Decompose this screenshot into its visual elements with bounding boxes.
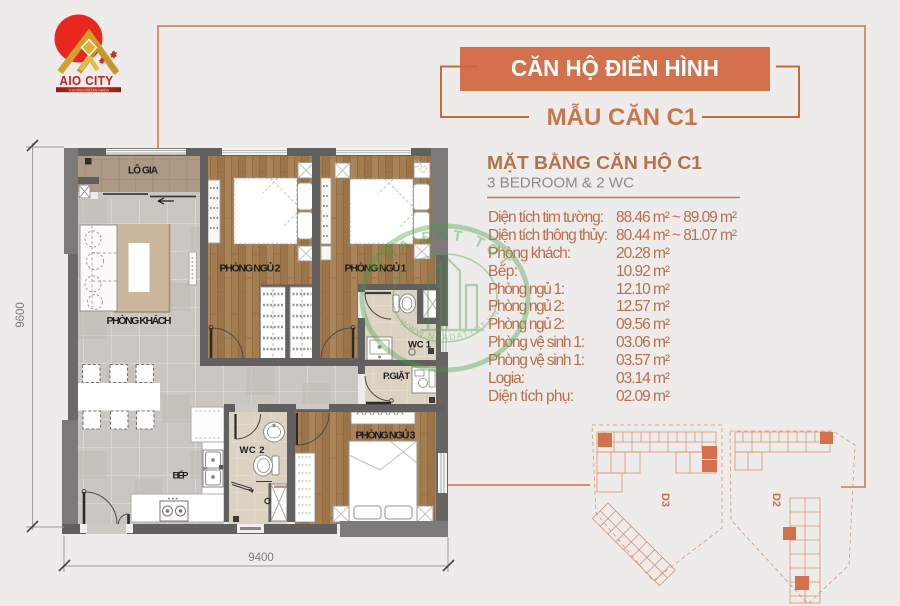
- svg-text:03.14 m²: 03.14 m²: [616, 370, 670, 387]
- svg-text:BẾP: BẾP: [173, 471, 190, 482]
- svg-text:09.56 m²: 09.56 m²: [616, 316, 670, 333]
- svg-text:P.GIẶT: P.GIẶT: [383, 371, 410, 382]
- svg-text:D3: D3: [659, 493, 671, 507]
- svg-text:PHÒNG NGỦ 2: PHÒNG NGỦ 2: [220, 262, 281, 275]
- svg-text:WC 2: WC 2: [240, 445, 265, 456]
- svg-text:MẶT BẰNG CĂN HỘ C1: MẶT BẰNG CĂN HỘ C1: [487, 152, 702, 173]
- svg-text:03.06 m²: 03.06 m²: [616, 334, 670, 351]
- svg-text:02.09 m²: 02.09 m²: [616, 388, 670, 405]
- svg-text:Diện tích phụ:: Diện tích phụ:: [488, 388, 574, 405]
- svg-text:Logia:: Logia:: [488, 370, 525, 387]
- svg-text:10.92 m²: 10.92 m²: [616, 263, 670, 280]
- svg-text:PHÒNG NGỦ 3: PHÒNG NGỦ 3: [356, 429, 416, 442]
- svg-text:9400: 9400: [248, 552, 274, 564]
- svg-text:80.44 m² ~ 81.07 m²: 80.44 m² ~ 81.07 m²: [616, 227, 737, 244]
- svg-text:3 BEDROOM & 2 WC: 3 BEDROOM & 2 WC: [487, 176, 634, 192]
- svg-text:LÔ GIA: LÔ GIA: [128, 164, 158, 177]
- svg-text:D2: D2: [770, 493, 782, 507]
- svg-text:20.28 m²: 20.28 m²: [616, 245, 670, 262]
- svg-text:Phòng vệ sinh 1:: Phòng vệ sinh 1:: [488, 352, 585, 369]
- svg-text:Diện tích thông thủy:: Diện tích thông thủy:: [488, 227, 608, 244]
- svg-text:9600: 9600: [15, 302, 27, 328]
- svg-text:12.57 m²: 12.57 m²: [616, 298, 670, 315]
- svg-text:PHÒNG KHÁCH: PHÒNG KHÁCH: [107, 314, 172, 327]
- svg-text:12.10 m²: 12.10 m²: [616, 281, 670, 298]
- svg-text:88.46 m² ~ 89.09 m²: 88.46 m² ~ 89.09 m²: [616, 209, 737, 226]
- svg-text:Diện tích tim tường:: Diện tích tim tường:: [488, 209, 604, 226]
- svg-text:MẪU CĂN C1: MẪU CĂN C1: [547, 102, 698, 131]
- svg-text:THƯƠNG PHỐ AN NHIÊN: THƯƠNG PHỐ AN NHIÊN: [68, 87, 109, 92]
- svg-text:03.57 m²: 03.57 m²: [616, 352, 670, 369]
- svg-text:WC 1: WC 1: [408, 340, 432, 351]
- svg-text:AIO CITY: AIO CITY: [60, 74, 114, 88]
- svg-text:CĂN HỘ ĐIỂN HÌNH: CĂN HỘ ĐIỂN HÌNH: [511, 54, 719, 81]
